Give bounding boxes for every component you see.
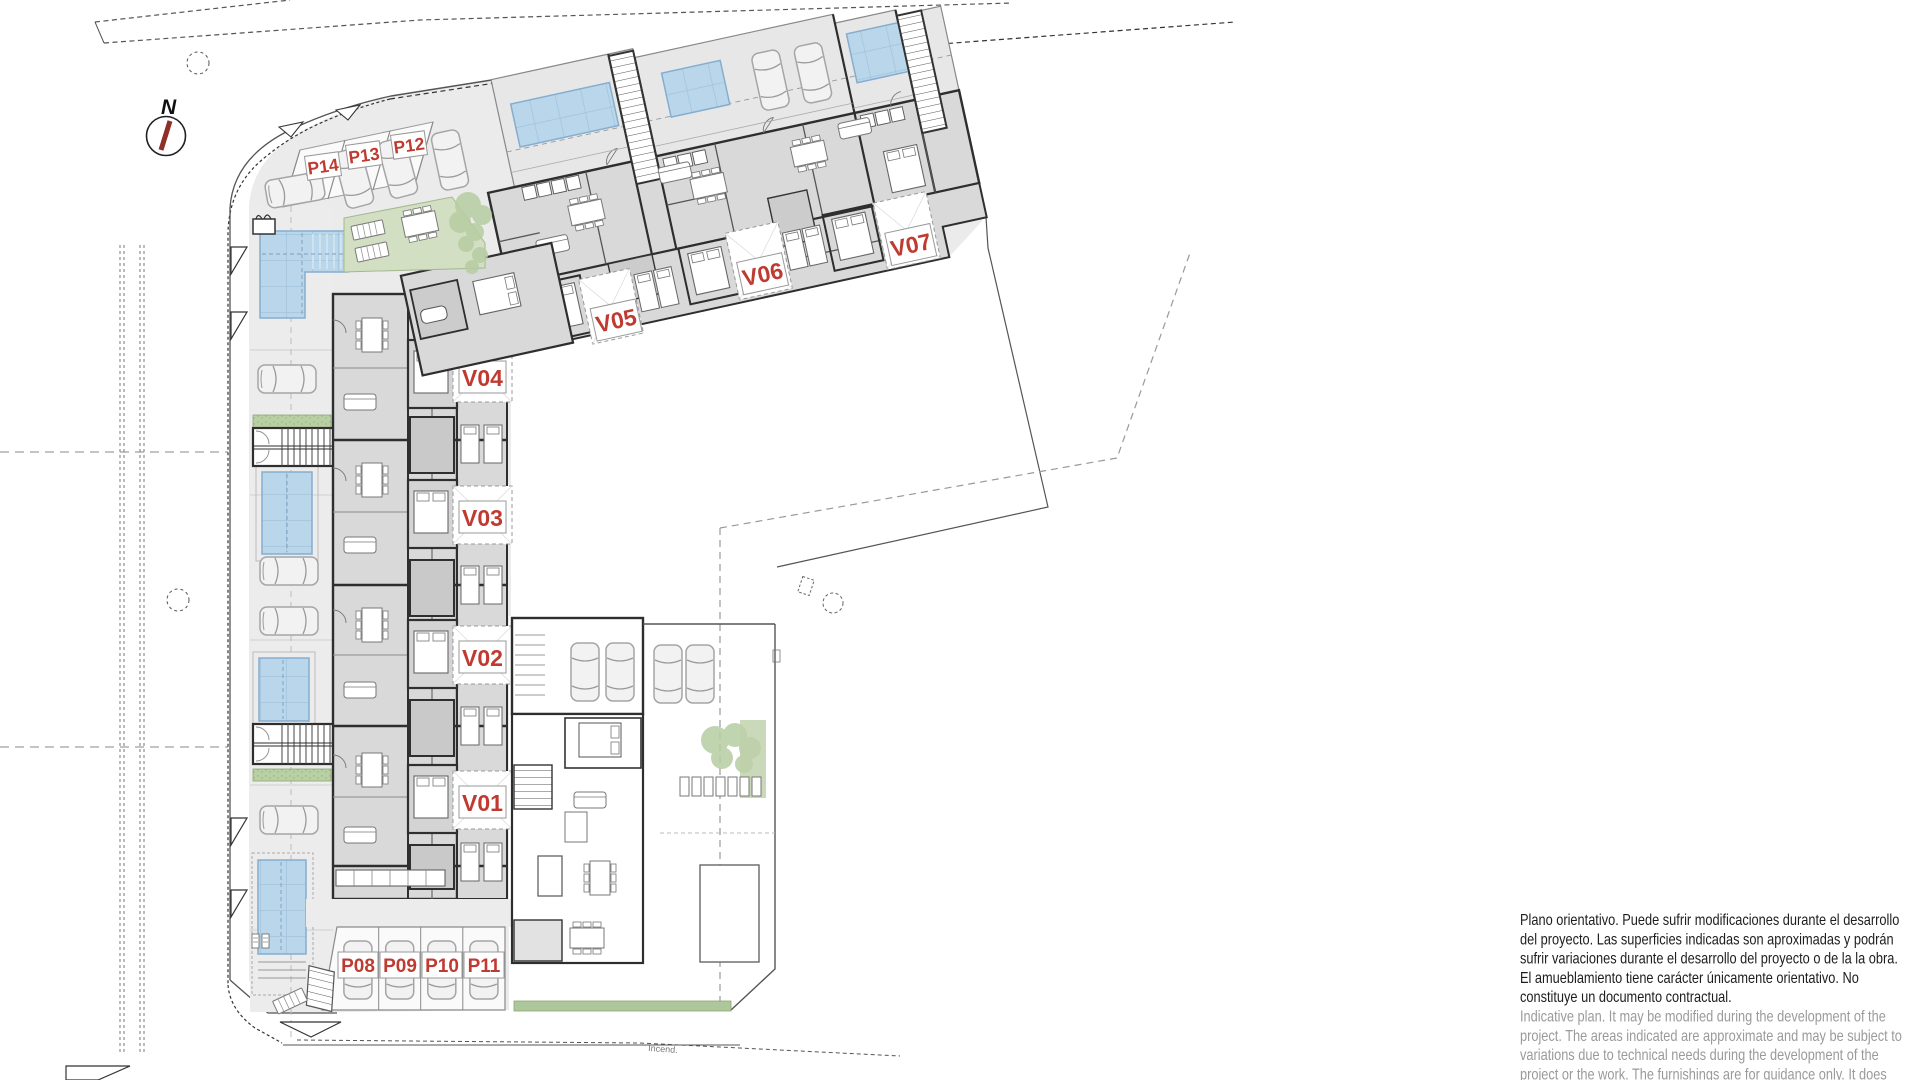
svg-text:sufrir variaciones durante el: sufrir variaciones durante el desarrollo… (1520, 950, 1898, 967)
svg-text:V03: V03 (462, 505, 503, 531)
svg-text:P10: P10 (425, 956, 459, 977)
svg-text:Plano orientativo. Puede sufri: Plano orientativo. Puede sufrir modifica… (1520, 912, 1899, 929)
svg-text:V01: V01 (462, 790, 503, 816)
svg-text:P08: P08 (341, 956, 375, 977)
svg-text:V04: V04 (462, 365, 503, 391)
svg-text:P09: P09 (383, 956, 417, 977)
svg-text:El amueblamiento tiene carácte: El amueblamiento tiene carácter únicamen… (1520, 970, 1859, 987)
svg-text:V02: V02 (462, 645, 503, 671)
svg-text:P11: P11 (468, 956, 501, 977)
svg-text:variations due to technical ne: variations due to technical needs during… (1520, 1047, 1879, 1064)
svg-text:project. The areas indicated a: project. The areas indicated are approxi… (1520, 1028, 1902, 1045)
svg-text:del proyecto. Las superficies: del proyecto. Las superficies indicadas … (1520, 931, 1894, 948)
svg-text:Indicative plan. It may be mod: Indicative plan. It may be modified duri… (1520, 1008, 1886, 1025)
svg-text:project or the work. The furni: project or the work. The furnishings are… (1520, 1066, 1887, 1080)
svg-text:N: N (161, 96, 177, 119)
svg-text:constituye un documento contra: constituye un documento contractual. (1520, 989, 1732, 1006)
svg-text:Incend.: Incend. (648, 1043, 678, 1055)
